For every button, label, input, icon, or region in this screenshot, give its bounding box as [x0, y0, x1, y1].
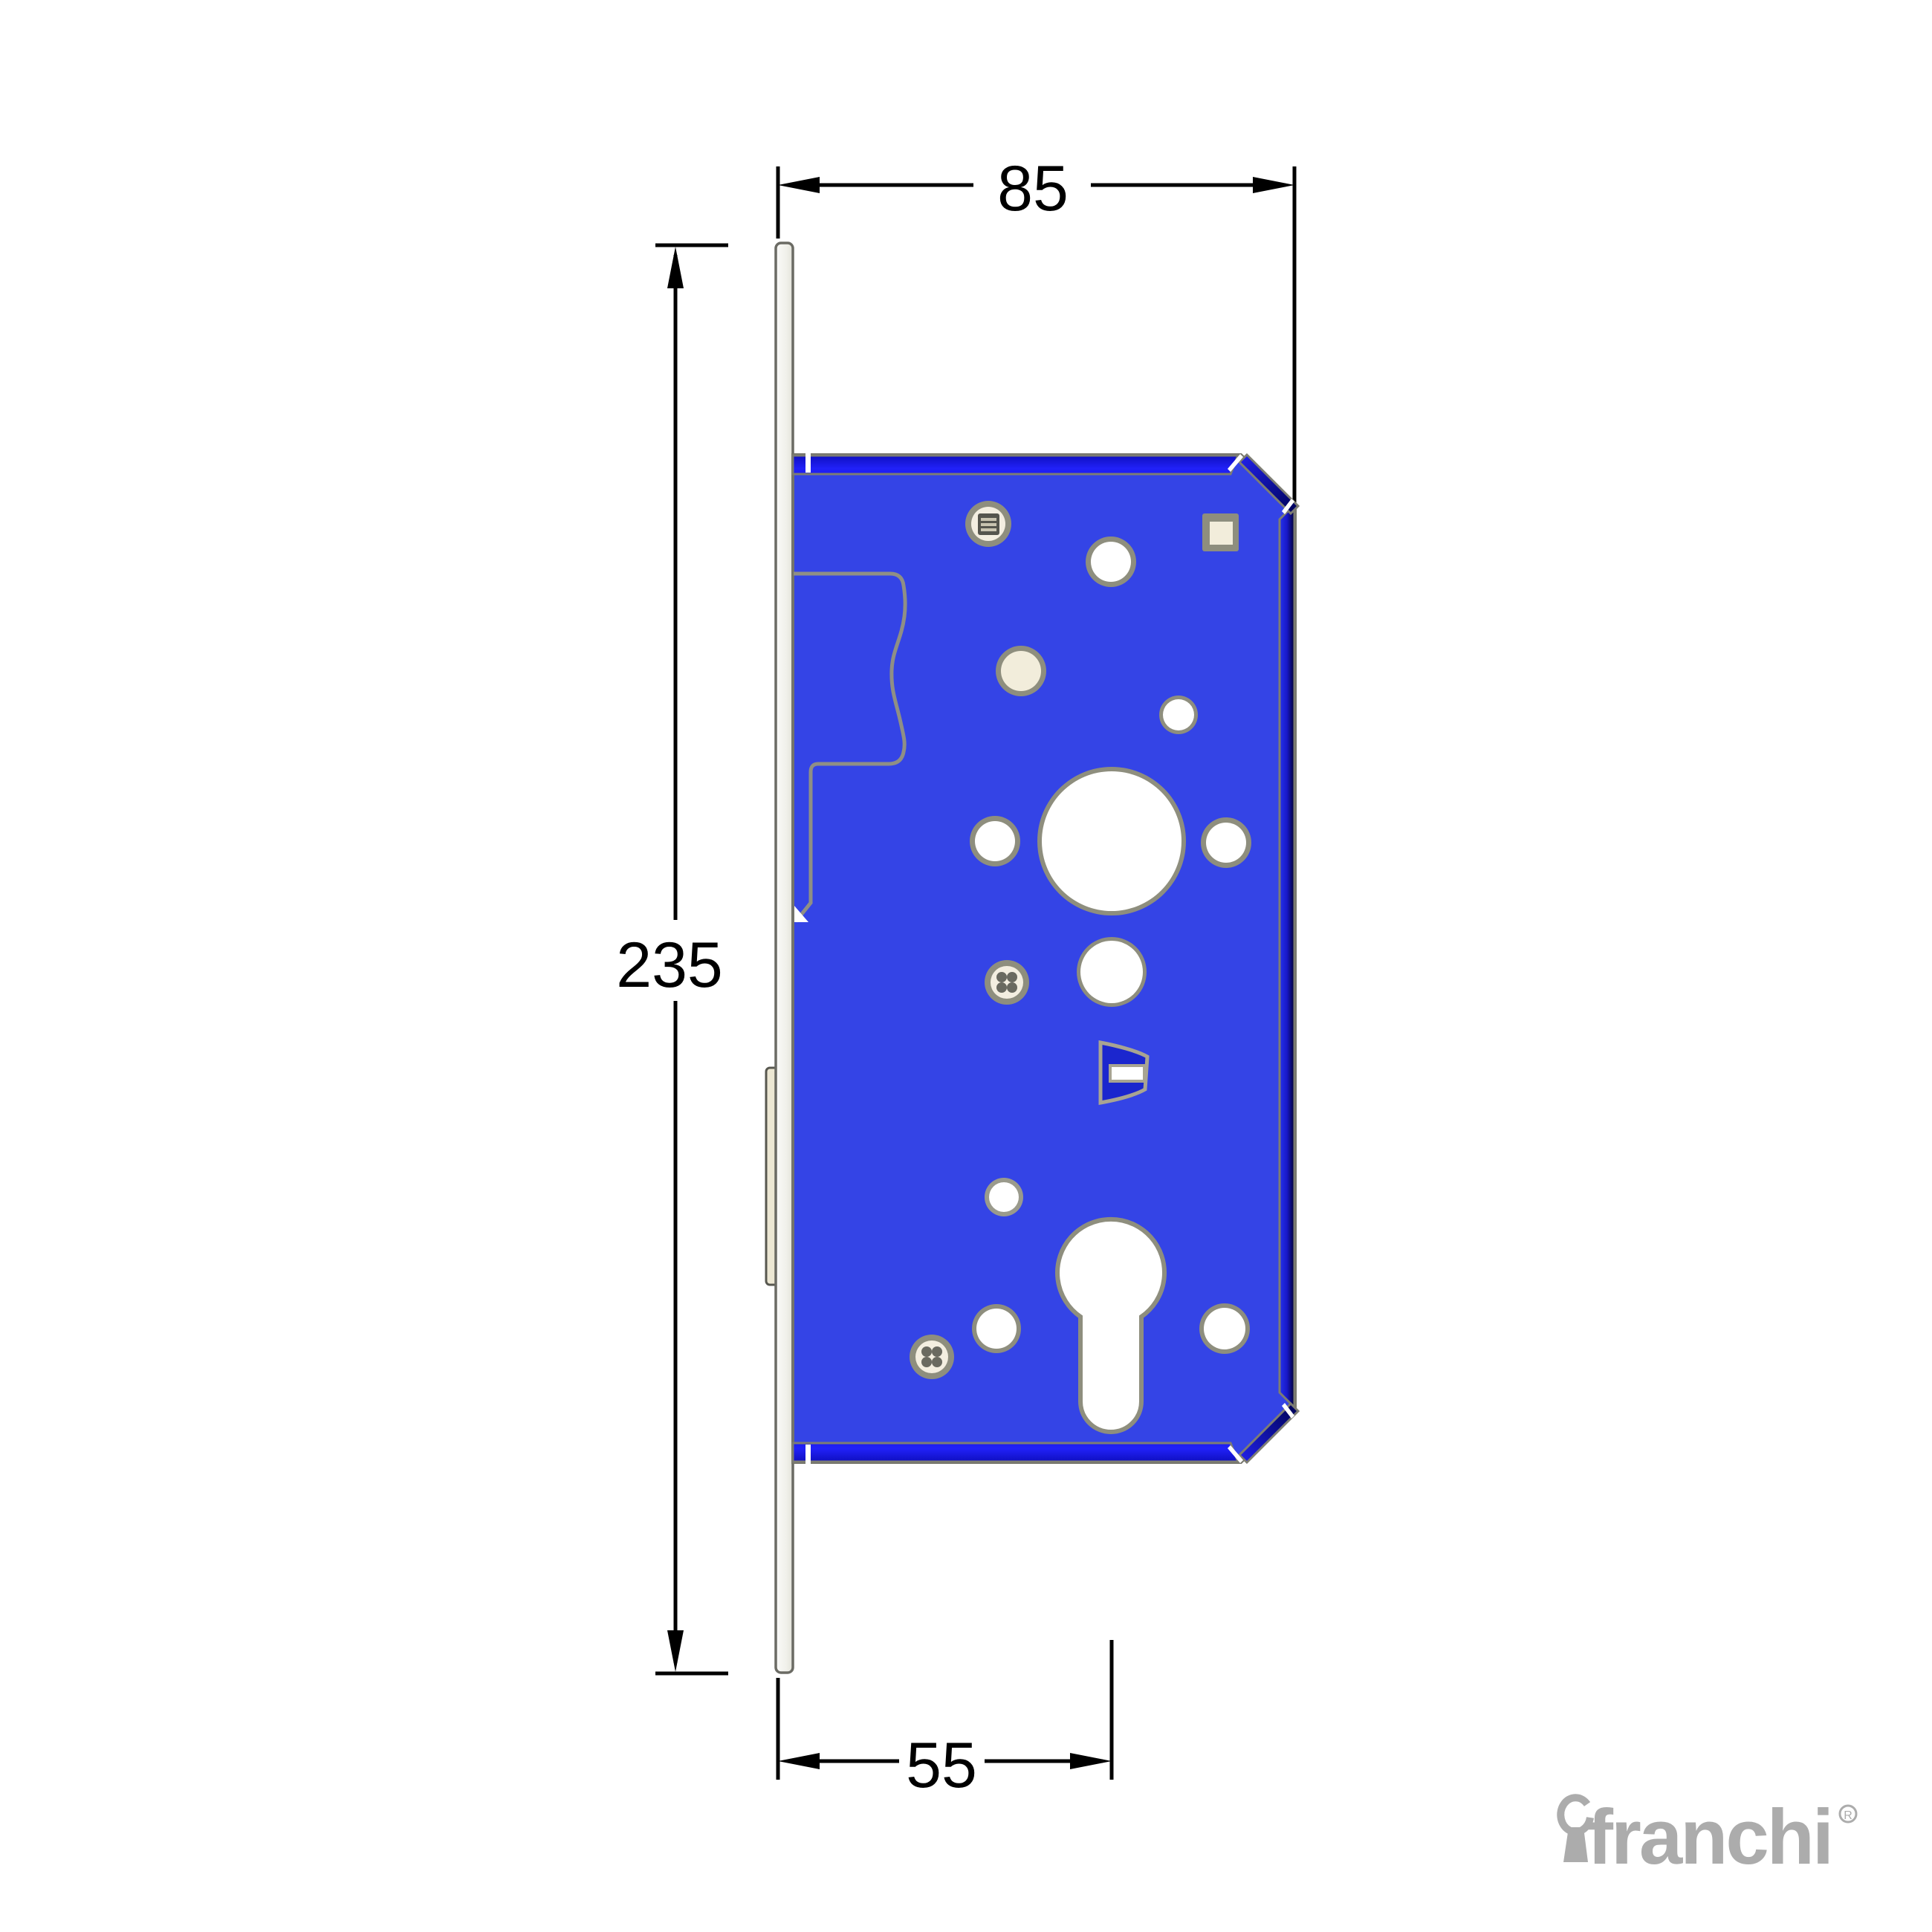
svg-text:235: 235 — [616, 930, 723, 1001]
svg-text:55: 55 — [906, 1730, 977, 1801]
svg-text:R: R — [1844, 1809, 1852, 1822]
svg-text:franchi: franchi — [1587, 1794, 1832, 1881]
svg-text:85: 85 — [997, 153, 1069, 224]
